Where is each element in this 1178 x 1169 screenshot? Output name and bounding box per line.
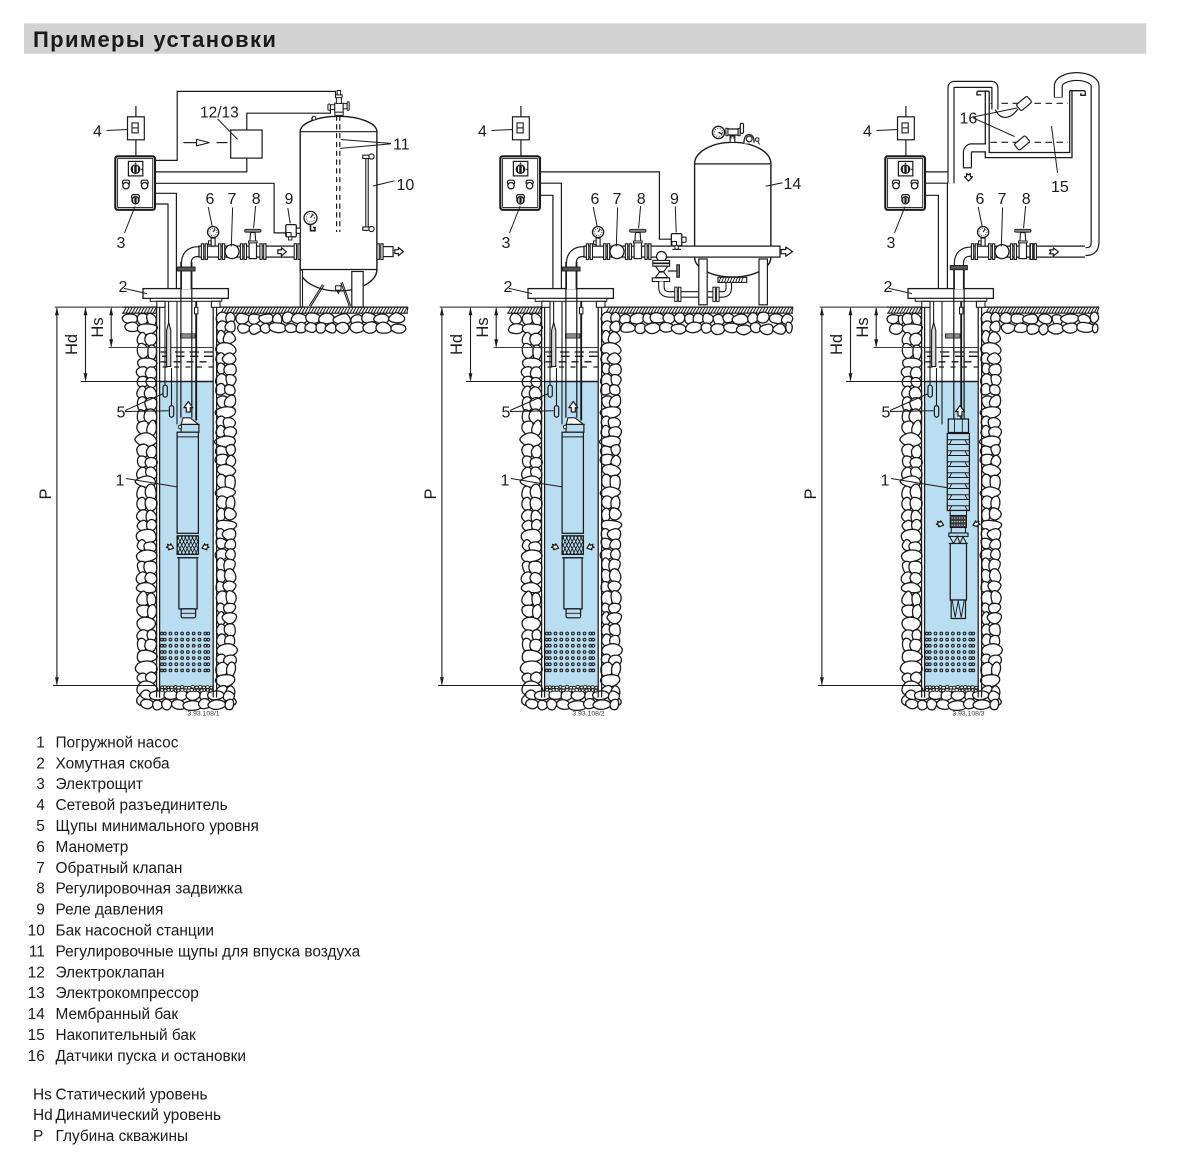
svg-text:5: 5 (36, 818, 45, 835)
svg-text:Мембранный бак: Мембранный бак (56, 1006, 179, 1023)
svg-text:15: 15 (1051, 179, 1069, 196)
svg-text:Примеры установки: Примеры установки (33, 27, 277, 52)
svg-text:9: 9 (285, 191, 294, 208)
svg-text:10: 10 (28, 923, 45, 940)
svg-text:Электроклапан: Электроклапан (56, 964, 165, 981)
svg-text:Манометр: Манометр (56, 839, 129, 856)
svg-text:Погружной насос: Погружной насос (56, 734, 179, 751)
svg-text:4: 4 (478, 124, 487, 141)
svg-text:3.93.108/1: 3.93.108/1 (187, 711, 219, 718)
svg-text:Регулировочная задвижка: Регулировочная задвижка (56, 881, 243, 898)
svg-text:11: 11 (393, 137, 410, 154)
svg-text:11: 11 (29, 943, 45, 960)
svg-text:4: 4 (863, 124, 872, 141)
svg-text:15: 15 (28, 1027, 45, 1044)
svg-text:Обратный клапан: Обратный клапан (56, 860, 183, 877)
svg-text:Бак насосной станции: Бак насосной станции (56, 923, 214, 940)
svg-text:3.93.108/2: 3.93.108/2 (572, 711, 604, 718)
svg-text:3: 3 (36, 776, 45, 793)
svg-text:14: 14 (784, 176, 802, 193)
svg-text:3: 3 (117, 235, 126, 252)
svg-text:4: 4 (93, 124, 102, 141)
svg-text:Реле давления: Реле давления (56, 902, 164, 919)
svg-text:Статический уровень: Статический уровень (56, 1086, 208, 1103)
svg-text:Регулировочные щупы для впуска: Регулировочные щупы для впуска воздуха (56, 943, 361, 960)
svg-text:9: 9 (36, 902, 45, 919)
svg-text:2: 2 (36, 755, 45, 772)
svg-text:10: 10 (397, 177, 415, 194)
svg-text:12/13: 12/13 (200, 105, 239, 122)
svg-text:P: P (33, 1128, 43, 1145)
svg-text:Накопительный бак: Накопительный бак (56, 1027, 196, 1044)
svg-text:14: 14 (28, 1006, 46, 1023)
svg-text:13: 13 (28, 985, 45, 1002)
svg-text:4: 4 (36, 797, 45, 814)
svg-text:Сетевой разъединитель: Сетевой разъединитель (56, 797, 228, 814)
svg-text:3.93.108/3: 3.93.108/3 (952, 711, 984, 718)
svg-text:3: 3 (502, 235, 511, 252)
svg-text:8: 8 (36, 881, 45, 898)
svg-text:Электрокомпрессор: Электрокомпрессор (56, 985, 199, 1002)
svg-text:16: 16 (28, 1048, 45, 1065)
svg-text:Hd: Hd (33, 1107, 53, 1124)
svg-text:Датчики пуска и остановки: Датчики пуска и остановки (56, 1048, 247, 1065)
svg-text:9: 9 (670, 191, 679, 208)
svg-text:Хомутная скоба: Хомутная скоба (56, 755, 170, 772)
svg-text:Hs: Hs (33, 1086, 52, 1103)
svg-text:16: 16 (960, 111, 978, 128)
svg-text:3: 3 (887, 235, 896, 252)
svg-text:6: 6 (36, 839, 45, 856)
svg-text:Электрощит: Электрощит (56, 776, 143, 793)
svg-text:Глубина скважины: Глубина скважины (56, 1128, 189, 1145)
svg-text:Динамический уровень: Динамический уровень (56, 1107, 221, 1124)
svg-text:7: 7 (36, 860, 45, 877)
svg-text:12: 12 (28, 964, 45, 981)
svg-text:Щупы минимального уровня: Щупы минимального уровня (56, 818, 259, 835)
svg-text:1: 1 (36, 734, 45, 751)
